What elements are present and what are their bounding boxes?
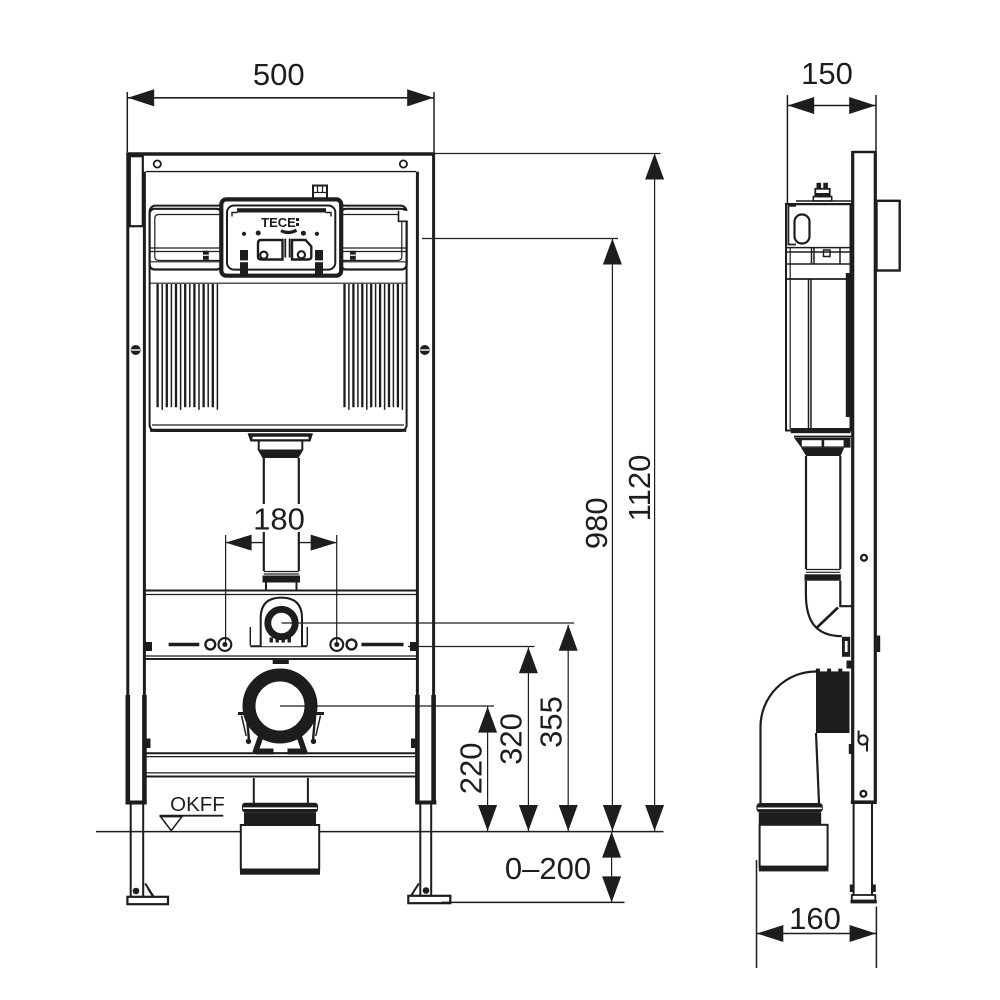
svg-text:1120: 1120 <box>622 455 657 522</box>
svg-text:980: 980 <box>579 497 614 549</box>
svg-text:180: 180 <box>253 502 305 537</box>
svg-text:220: 220 <box>454 743 489 795</box>
svg-text:TECE: TECE <box>261 215 296 230</box>
svg-text:320: 320 <box>493 713 528 765</box>
svg-text:160: 160 <box>789 901 841 936</box>
svg-text:500: 500 <box>253 57 305 92</box>
svg-text:OKFF: OKFF <box>170 793 225 816</box>
svg-text:0–200: 0–200 <box>505 851 591 886</box>
svg-text:150: 150 <box>801 56 853 91</box>
svg-text:355: 355 <box>533 696 568 748</box>
